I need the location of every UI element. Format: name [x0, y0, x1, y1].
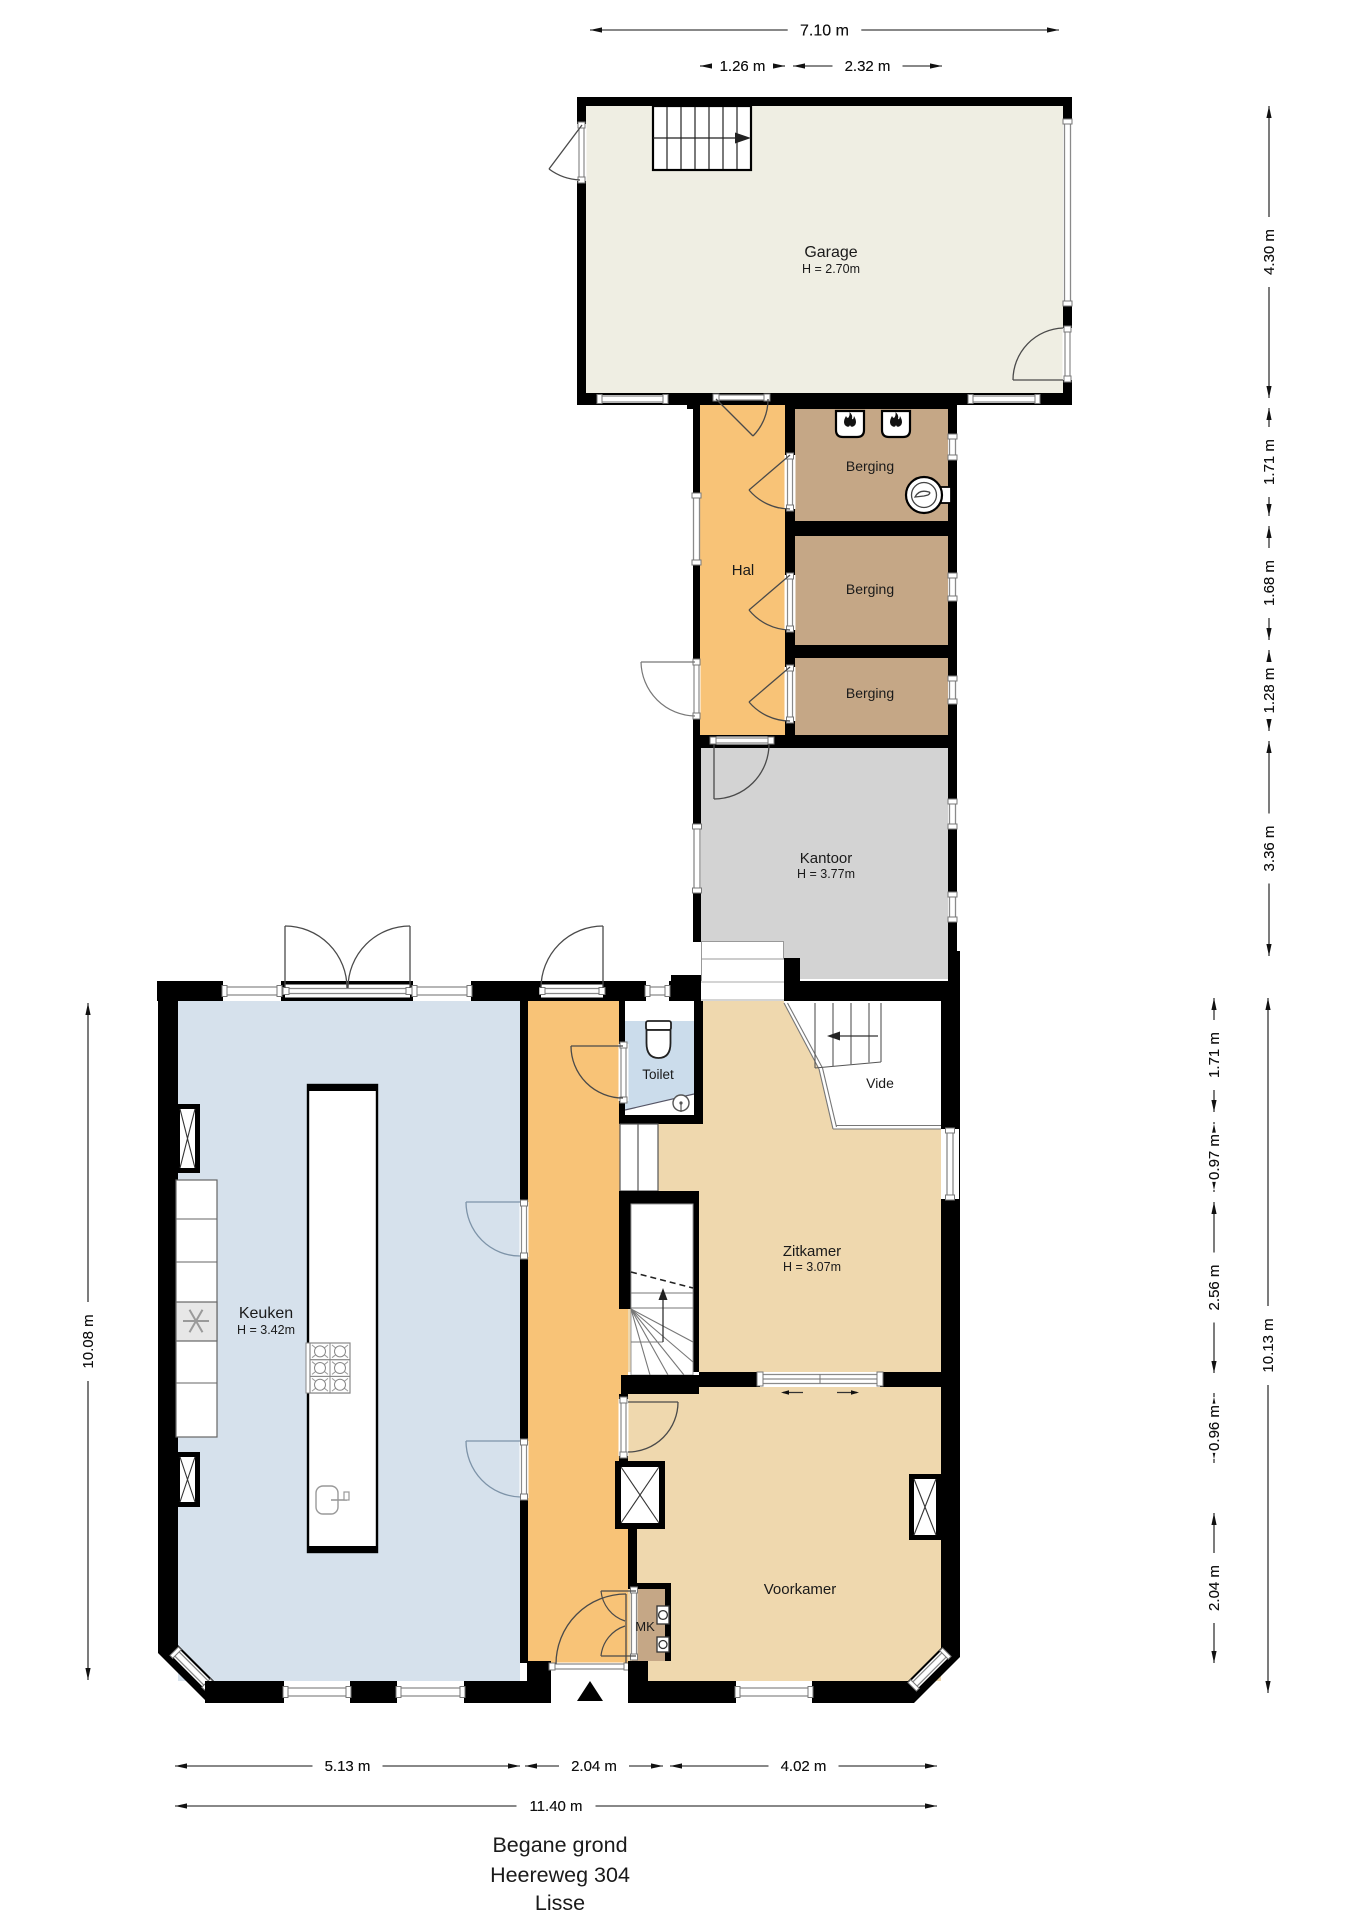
svg-text:Toilet: Toilet — [642, 1067, 674, 1082]
svg-text:2.04 m: 2.04 m — [571, 1758, 617, 1775]
svg-text:Voorkamer: Voorkamer — [764, 1581, 837, 1598]
svg-text:Hal: Hal — [732, 562, 755, 579]
svg-text:1.71 m: 1.71 m — [1261, 439, 1278, 485]
svg-text:0.97 m: 0.97 m — [1206, 1134, 1223, 1180]
svg-text:Begane grond: Begane grond — [492, 1833, 627, 1857]
svg-text:4.02 m: 4.02 m — [781, 1758, 827, 1775]
svg-text:Heereweg 304: Heereweg 304 — [490, 1863, 630, 1887]
svg-text:Vide: Vide — [866, 1075, 894, 1091]
svg-text:Garage: Garage — [804, 244, 857, 261]
svg-text:1.28 m: 1.28 m — [1261, 668, 1278, 714]
svg-text:3.36 m: 3.36 m — [1261, 826, 1278, 872]
svg-text:2.04 m: 2.04 m — [1206, 1565, 1223, 1611]
svg-text:2.32 m: 2.32 m — [845, 58, 891, 75]
svg-text:5.13 m: 5.13 m — [325, 1758, 371, 1775]
svg-text:1.68 m: 1.68 m — [1261, 560, 1278, 606]
svg-text:H = 2.70m: H = 2.70m — [802, 262, 860, 276]
svg-text:4.30 m: 4.30 m — [1261, 229, 1278, 275]
svg-text:H = 3.42m: H = 3.42m — [237, 1323, 295, 1337]
svg-text:2.56 m: 2.56 m — [1206, 1265, 1223, 1311]
svg-text:11.40 m: 11.40 m — [529, 1798, 582, 1815]
svg-text:Berging: Berging — [846, 581, 894, 597]
svg-text:Kantoor: Kantoor — [800, 850, 853, 867]
svg-text:Berging: Berging — [846, 685, 894, 701]
svg-text:1.26 m: 1.26 m — [720, 58, 766, 75]
svg-text:10.13 m: 10.13 m — [1260, 1318, 1277, 1372]
svg-text:H = 3.07m: H = 3.07m — [783, 1260, 841, 1274]
svg-text:1.71 m: 1.71 m — [1206, 1032, 1223, 1078]
svg-text:10.08 m: 10.08 m — [80, 1314, 97, 1368]
svg-text:0.96 m: 0.96 m — [1206, 1405, 1223, 1451]
svg-text:Keuken: Keuken — [239, 1305, 293, 1322]
svg-text:Lisse: Lisse — [535, 1891, 585, 1915]
svg-text:Berging: Berging — [846, 458, 894, 474]
svg-text:MK: MK — [635, 1619, 655, 1634]
svg-text:H = 3.77m: H = 3.77m — [797, 867, 855, 881]
svg-text:Zitkamer: Zitkamer — [783, 1243, 841, 1260]
svg-text:7.10 m: 7.10 m — [800, 22, 849, 39]
